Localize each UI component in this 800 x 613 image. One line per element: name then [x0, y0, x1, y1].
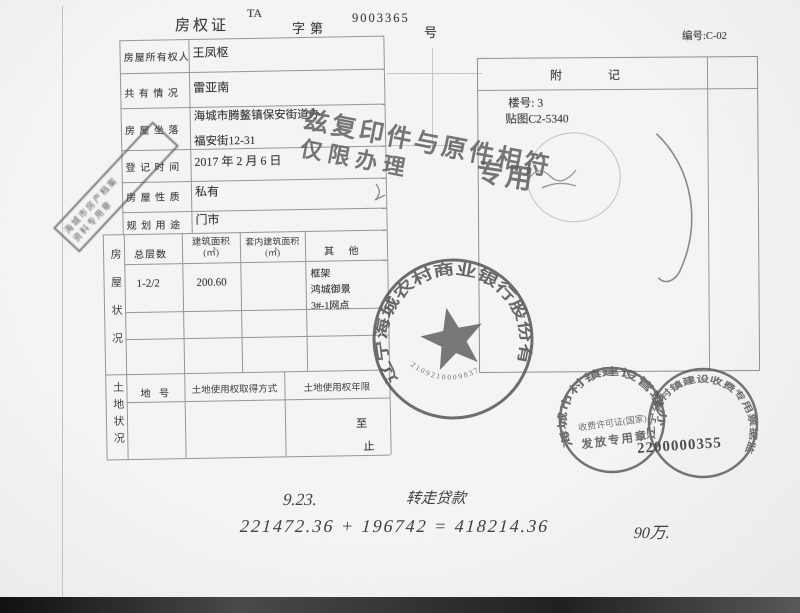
owner-label: 房屋所有权人 [124, 48, 190, 64]
attachment-line2: 贴图C2-5340 [505, 110, 568, 126]
handwritten-date: 9.23. [282, 490, 317, 510]
usage-value: 门市 [195, 210, 219, 227]
fee-seal-line1: 收费许可证(国家) [577, 412, 647, 432]
grid-line [122, 178, 386, 184]
star-icon [416, 301, 490, 372]
col-area-header: 建筑面积 (㎡) [182, 237, 240, 260]
coowner-label: 共 有 情 况 [124, 84, 179, 100]
col-other-header: 其 他 [324, 242, 365, 258]
grid-line [119, 36, 383, 42]
grid-line [182, 233, 187, 458]
attachment-line1: 楼号: 3 [508, 95, 543, 111]
col-inner-area-header-unit: (㎡) [240, 247, 305, 259]
grid-line [105, 370, 389, 376]
grid-line [126, 335, 389, 341]
regdate-value: 2017 年 2 月 6 日 [194, 151, 281, 170]
grid-line [188, 39, 192, 233]
grid-line [107, 455, 391, 461]
doc-type-title: 房权证 [175, 14, 229, 35]
scanned-certificate-page: 房权证 TA 字第 9003365 号 编号:C-02 房屋所有权人 王凤枢 共… [0, 0, 800, 613]
term-to: 至 [356, 415, 367, 431]
bank-seal: 辽宁海城农村商业银行股份有限公司 2109210009837 [352, 238, 554, 440]
ref-number: 编号:C-02 [682, 28, 727, 43]
attachment-title: 附记 [550, 66, 666, 84]
scan-bottom-shadow [0, 597, 800, 613]
grid-line [120, 69, 384, 75]
handwritten-phrase: 转走贷款 [405, 487, 466, 508]
coowner-value: 雷亚南 [193, 78, 229, 96]
nature-value: 私有 [195, 182, 219, 199]
location-line1: 海城市腾鳌镇保安街道办 [194, 106, 321, 124]
col-parcel-header: 地 号 [140, 384, 172, 400]
handwritten-scribble [524, 156, 604, 200]
owner-value: 王凤枢 [192, 43, 228, 61]
house-section-label: 房屋状况 [107, 248, 125, 360]
location-line2: 福安街12-31 [194, 132, 256, 149]
term-end: 止 [363, 438, 374, 454]
property-info-table: 房屋所有权人 王凤枢 共 有 情 况 雷亚南 房 屋 坐 落 海城市腾鳌镇保安街… [99, 34, 396, 464]
col-floors-header: 总层数 [134, 245, 167, 261]
handwritten-amount: 90万. [633, 519, 671, 543]
other-line3: 3#-1网点 [311, 296, 350, 312]
doc-number: 9003365 [352, 11, 410, 26]
other-line2: 鸿城御景 [311, 280, 351, 296]
grid-line [122, 208, 386, 214]
doc-series: TA [247, 6, 262, 21]
page-fold-edge [62, 6, 63, 597]
col-method-header: 土地使用权取得方式 [184, 380, 284, 396]
col-area-header-unit: (㎡) [182, 248, 240, 260]
land-section-label: 土地状况 [109, 381, 126, 449]
small-check-scribble [372, 180, 396, 208]
other-line1: 框架 [310, 265, 330, 280]
col-inner-area-header-text: 套内建筑面积 [240, 236, 305, 248]
col-inner-area-header: 套内建筑面积 (㎡) [240, 236, 305, 259]
scan-artifact-line [387, 73, 482, 74]
handwritten-curve [628, 115, 749, 316]
grid-line [305, 231, 308, 371]
floors-value: 1-2/2 [136, 278, 159, 290]
handwritten-equation: 221472.36 + 196742 = 418214.36 [239, 516, 550, 537]
doc-number-suffix: 号 [424, 22, 437, 41]
col-term-header: 土地使用权年限 [284, 379, 389, 395]
grid-line [478, 88, 757, 91]
invoice-seal: 辽宁省村镇建设收费专用票据监制 [638, 358, 768, 488]
usage-label: 规 划 用 途 [126, 216, 181, 232]
area-value: 200.60 [182, 276, 240, 289]
